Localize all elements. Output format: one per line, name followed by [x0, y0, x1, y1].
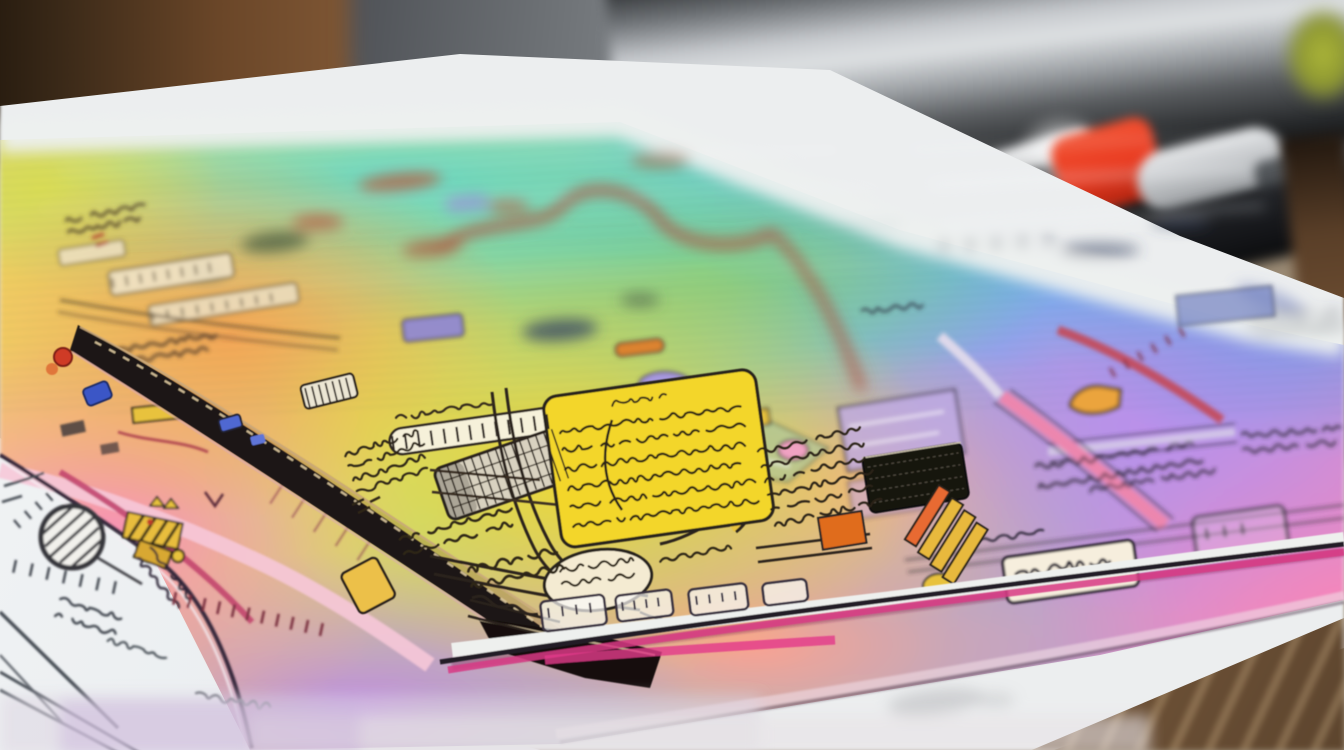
red-bead	[54, 348, 72, 366]
scribble-text	[660, 545, 732, 563]
blurred-upper-map-area	[0, 120, 1344, 390]
foreground-defocus-haze	[0, 683, 1150, 750]
no-entry-symbol	[36, 501, 109, 573]
scribble-text	[107, 637, 167, 660]
scribble-text	[55, 597, 130, 639]
orange-landmark-blob	[1068, 383, 1124, 417]
photo-of-hand-drawn-map	[0, 0, 1344, 750]
blue-bead	[82, 380, 113, 406]
scribble-text	[1242, 424, 1344, 453]
map-artwork	[0, 0, 1344, 750]
yellow-note-box	[542, 368, 775, 548]
scribble-text	[862, 302, 923, 313]
building-bar	[108, 253, 234, 296]
